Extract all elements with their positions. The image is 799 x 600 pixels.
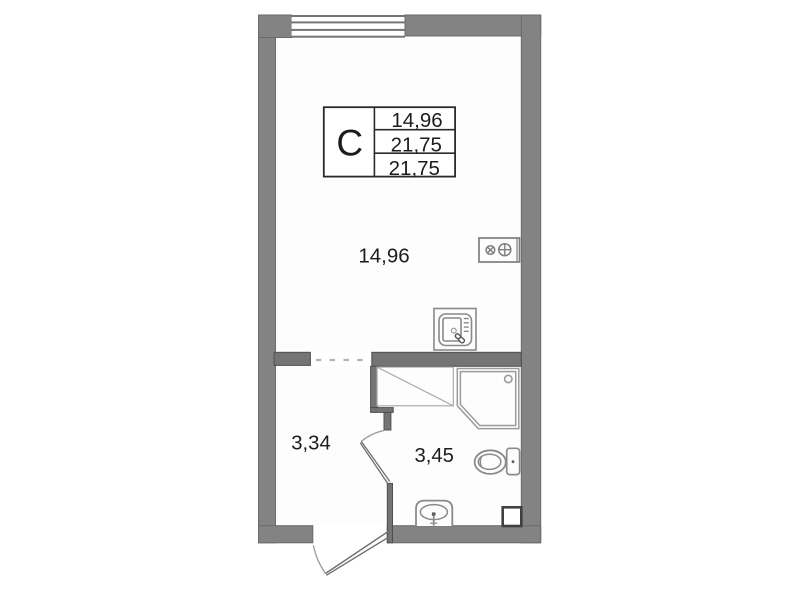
svg-text:14,96: 14,96 [358,245,409,268]
svg-text:C: C [336,123,363,164]
svg-text:21,75: 21,75 [391,133,442,156]
svg-text:3,34: 3,34 [291,432,330,454]
svg-text:21,75: 21,75 [389,157,440,180]
svg-text:3,45: 3,45 [414,445,453,467]
svg-text:14,96: 14,96 [391,109,442,132]
